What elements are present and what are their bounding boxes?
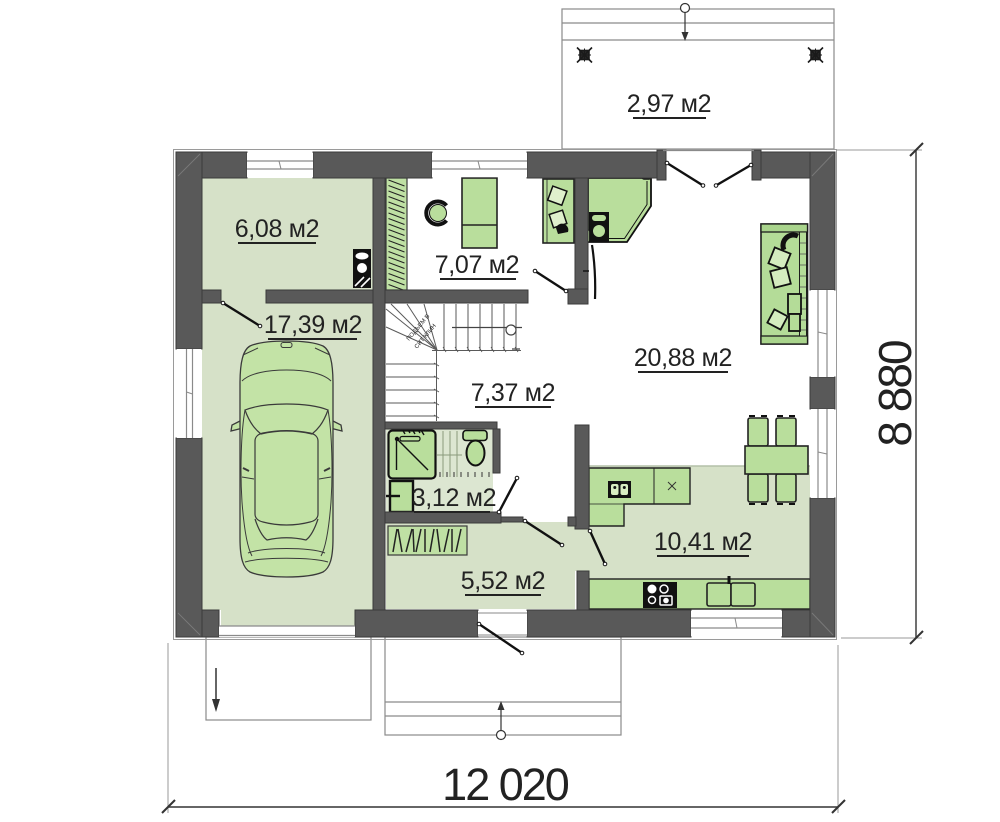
svg-text:5,52 м2: 5,52 м2 [461, 567, 546, 595]
svg-text:7,07 м2: 7,07 м2 [435, 251, 520, 279]
svg-text:6,08 м2: 6,08 м2 [235, 215, 320, 243]
svg-text:20,88 м2: 20,88 м2 [634, 344, 732, 372]
svg-text:2,97 м2: 2,97 м2 [627, 90, 712, 118]
svg-text:7,37 м2: 7,37 м2 [471, 379, 556, 407]
svg-text:8 880: 8 880 [869, 341, 921, 447]
svg-text:10,41 м2: 10,41 м2 [654, 528, 752, 556]
svg-text:17,39 м2: 17,39 м2 [264, 311, 362, 339]
svg-text:3,12 м2: 3,12 м2 [412, 484, 497, 512]
svg-text:12 020: 12 020 [442, 759, 569, 810]
